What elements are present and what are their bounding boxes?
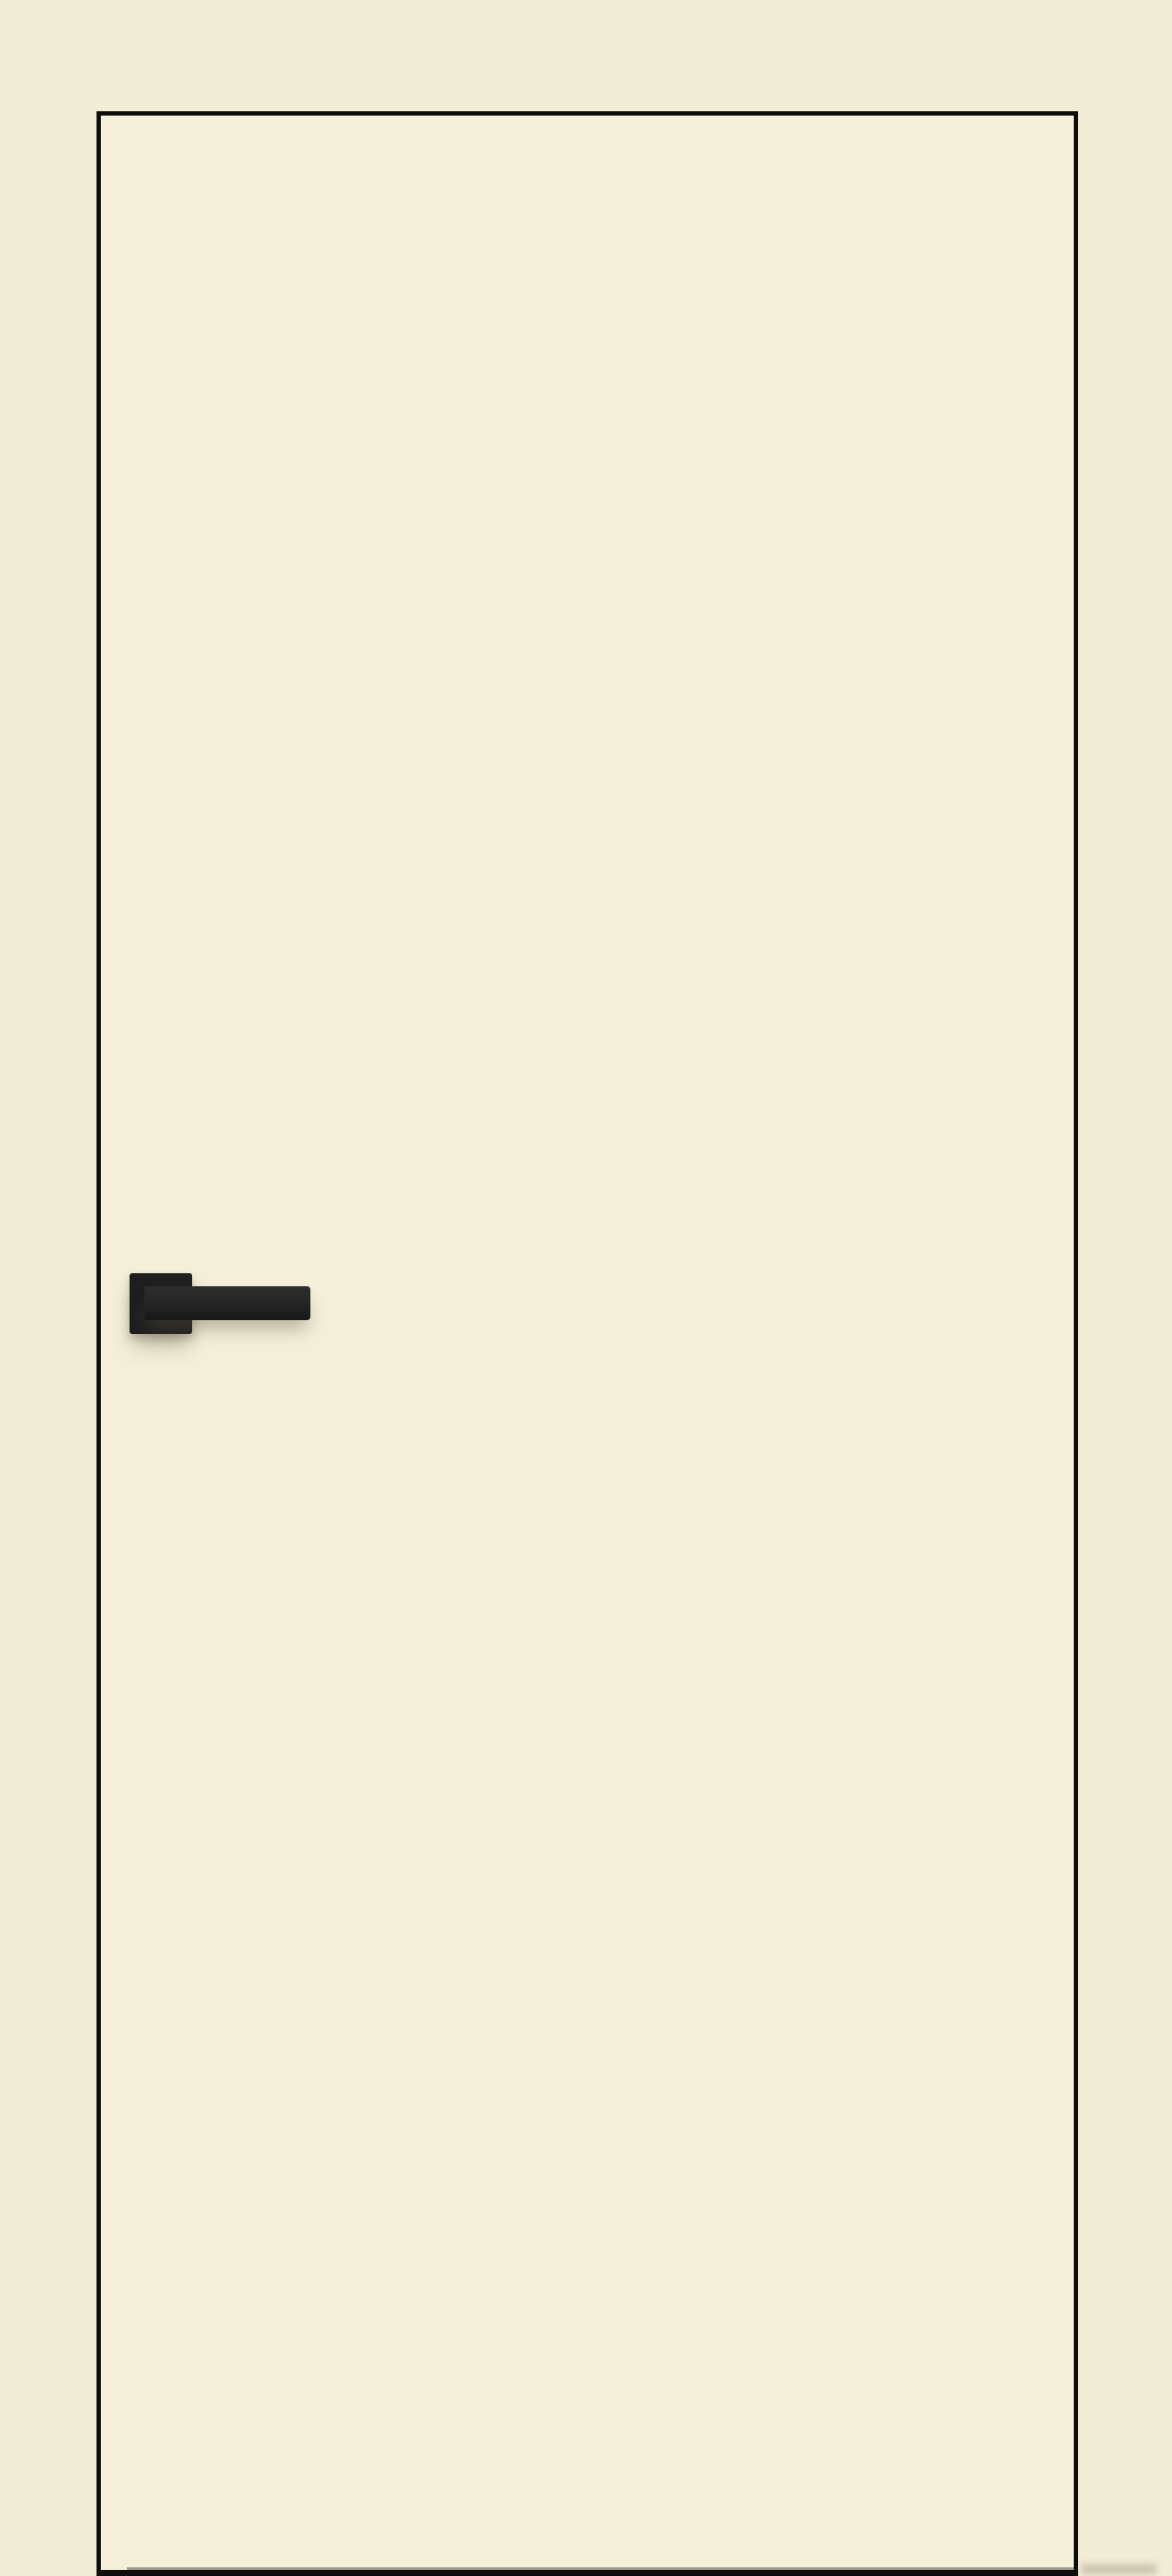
door-handle-lever [144, 1286, 310, 1320]
floor-shadow [1082, 2564, 1156, 2574]
door-bottom-seam [127, 2567, 1074, 2570]
door-panel [97, 111, 1078, 2576]
